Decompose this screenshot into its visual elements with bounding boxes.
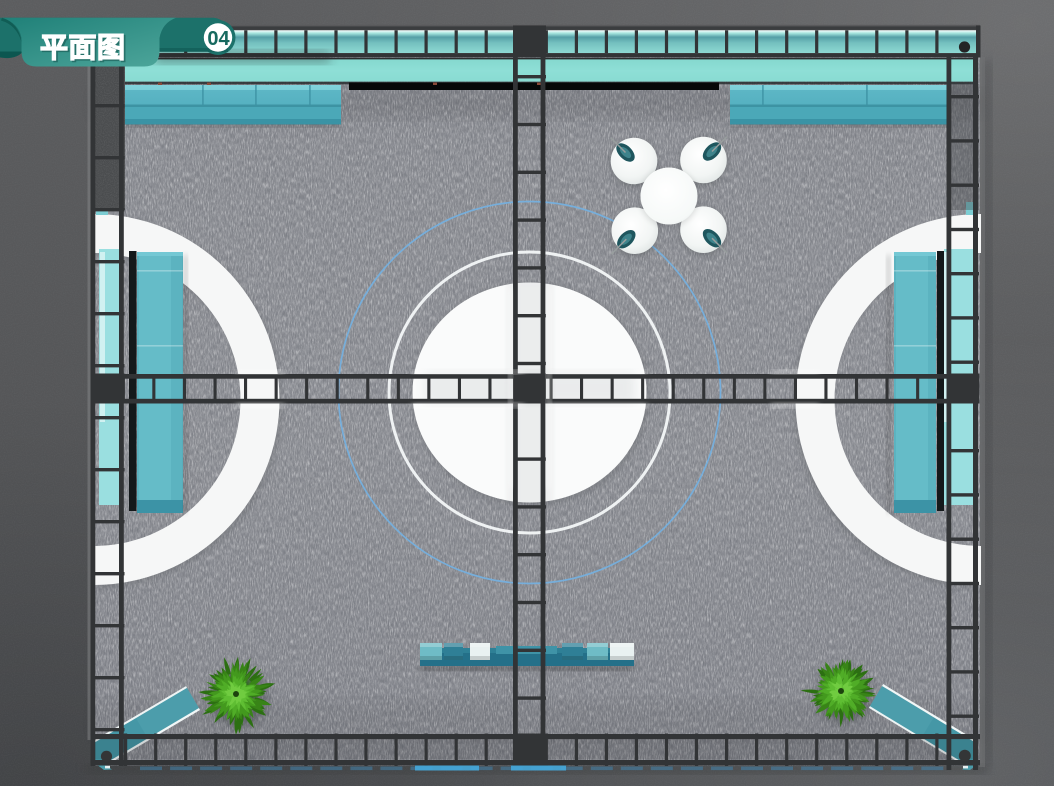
svg-text:04: 04 bbox=[207, 28, 230, 50]
svg-text:平面图: 平面图 bbox=[40, 32, 126, 63]
